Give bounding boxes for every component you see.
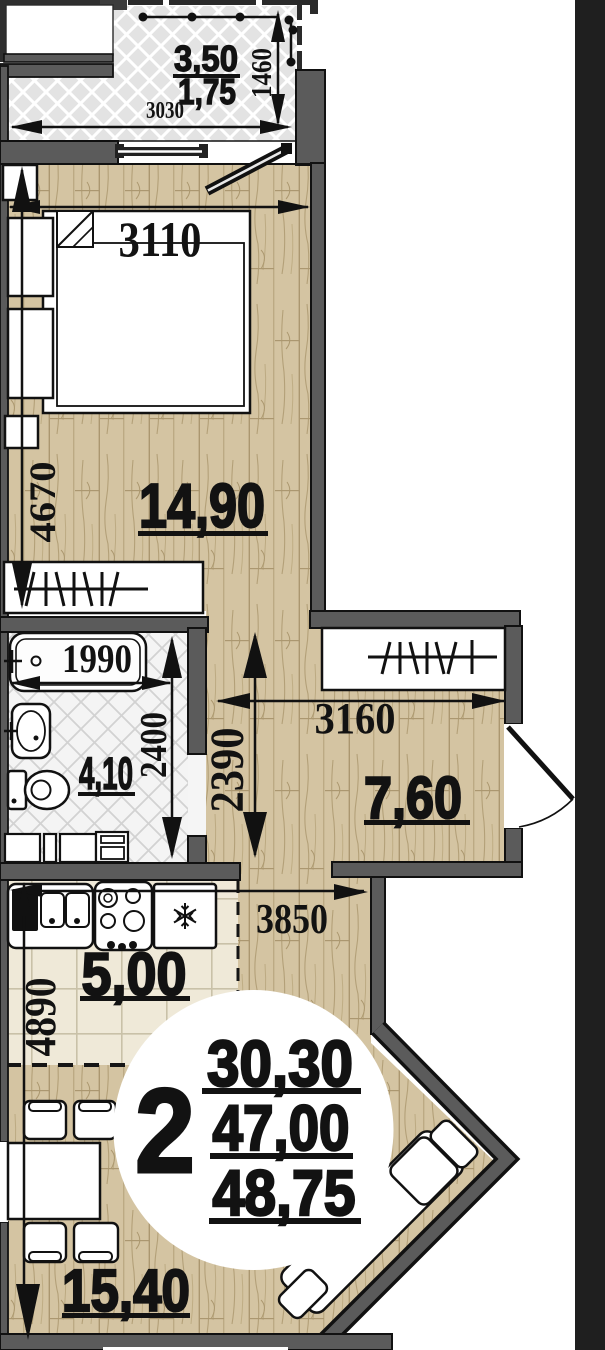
svg-text:4670: 4670 bbox=[23, 462, 64, 543]
svg-text:1990: 1990 bbox=[62, 636, 132, 681]
svg-text:4,10: 4,10 bbox=[79, 748, 133, 799]
svg-text:4890: 4890 bbox=[16, 978, 65, 1057]
svg-text:3850: 3850 bbox=[256, 897, 328, 943]
svg-text:3110: 3110 bbox=[119, 211, 202, 267]
svg-text:2390: 2390 bbox=[201, 728, 254, 813]
svg-text:3160: 3160 bbox=[315, 694, 396, 743]
svg-text:2400: 2400 bbox=[133, 712, 175, 778]
svg-text:1460: 1460 bbox=[247, 48, 278, 98]
svg-text:14,90: 14,90 bbox=[139, 472, 265, 541]
svg-text:1,75: 1,75 bbox=[178, 71, 236, 112]
svg-text:3030: 3030 bbox=[146, 98, 184, 124]
svg-text:2: 2 bbox=[135, 1064, 195, 1198]
